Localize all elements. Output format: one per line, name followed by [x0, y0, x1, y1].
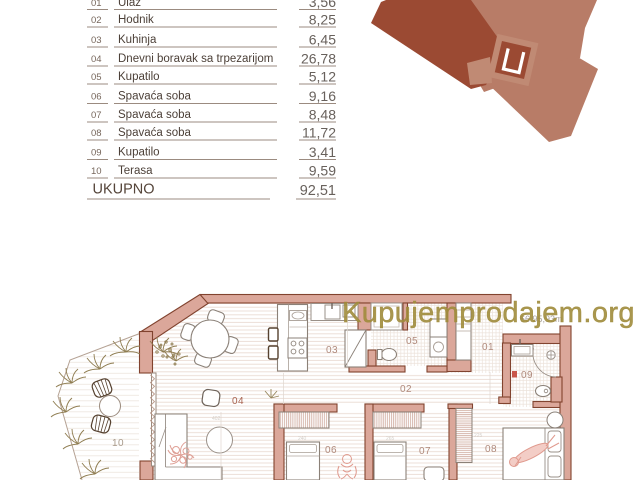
svg-text:265: 265	[386, 436, 395, 442]
svg-text:02: 02	[400, 384, 412, 395]
svg-text:03: 03	[326, 345, 338, 356]
svg-text:05: 05	[406, 336, 418, 347]
svg-text:8,25: 8,25	[309, 12, 336, 28]
svg-text:08: 08	[485, 444, 497, 455]
svg-text:10: 10	[112, 438, 124, 449]
svg-text:07: 07	[419, 446, 431, 457]
svg-text:3,56: 3,56	[309, 0, 336, 10]
svg-text:10: 10	[91, 166, 102, 177]
svg-text:5,12: 5,12	[309, 69, 336, 85]
svg-text:07: 07	[91, 110, 102, 121]
svg-text:UKUPNO: UKUPNO	[93, 182, 155, 198]
svg-text:Kupujemprodajem.org: Kupujemprodajem.org	[342, 297, 635, 329]
svg-text:06: 06	[325, 445, 337, 456]
svg-text:06: 06	[91, 92, 102, 103]
svg-text:08: 08	[91, 128, 102, 139]
svg-text:8,48: 8,48	[309, 107, 336, 123]
svg-text:Kupatilo: Kupatilo	[118, 147, 160, 159]
svg-text:Spavaća soba: Spavaća soba	[118, 91, 191, 103]
svg-text:Spavaća soba: Spavaća soba	[118, 109, 191, 121]
svg-text:Terasa: Terasa	[118, 165, 153, 177]
svg-text:26,78: 26,78	[301, 51, 336, 67]
svg-text:01: 01	[482, 342, 494, 353]
svg-text:02: 02	[91, 15, 102, 26]
svg-text:09: 09	[521, 370, 533, 381]
svg-text:Kupatilo: Kupatilo	[118, 71, 160, 83]
svg-text:03: 03	[91, 35, 102, 46]
svg-text:Kuhinja: Kuhinja	[118, 34, 157, 46]
svg-text:9,16: 9,16	[309, 88, 336, 104]
svg-text:9,59: 9,59	[309, 163, 336, 179]
svg-text:Dnevni boravak sa trpezarijom: Dnevni boravak sa trpezarijom	[118, 53, 273, 65]
svg-text:Hodnik: Hodnik	[118, 14, 154, 26]
svg-text:3,41: 3,41	[309, 144, 336, 160]
svg-text:04: 04	[91, 54, 102, 65]
svg-text:402: 402	[212, 416, 221, 422]
svg-text:09: 09	[91, 148, 102, 159]
svg-text:05: 05	[91, 72, 102, 83]
svg-text:92,51: 92,51	[300, 183, 336, 199]
svg-text:01: 01	[91, 0, 102, 9]
svg-text:225: 225	[474, 433, 483, 439]
svg-text:Ulaz: Ulaz	[118, 0, 141, 9]
svg-text:6,45: 6,45	[309, 32, 336, 48]
svg-text:11,72: 11,72	[302, 125, 336, 141]
svg-text:Spavaća soba: Spavaća soba	[118, 127, 191, 139]
svg-text:240: 240	[298, 436, 307, 442]
svg-text:04: 04	[232, 396, 244, 407]
